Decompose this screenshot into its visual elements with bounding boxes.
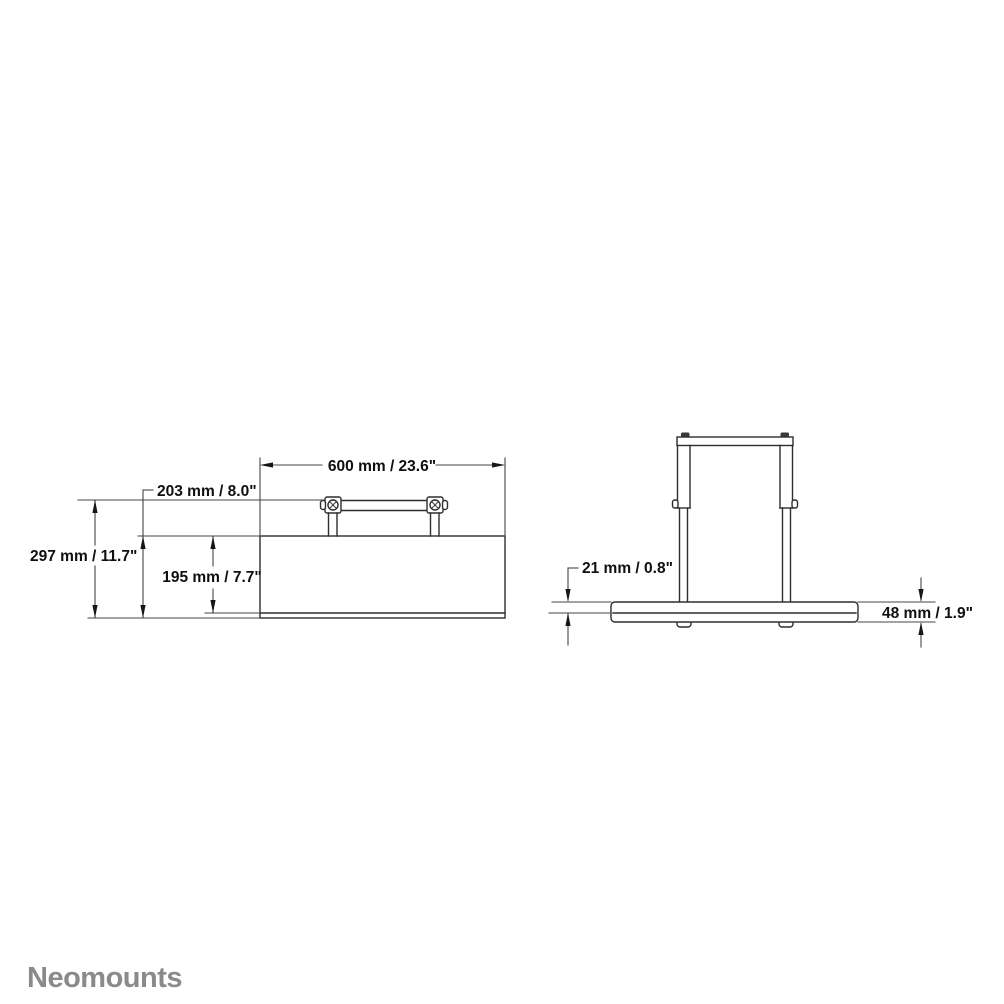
side-shelf-plate [611, 602, 858, 627]
arrow-down-icon [92, 605, 97, 618]
plate-body [611, 602, 858, 622]
front-mounting-bracket [321, 497, 448, 536]
arrow-up-icon [92, 500, 97, 513]
screw-block-left-nub [321, 501, 326, 510]
dimension-total-thickness-48: 48 mm / 1.9" [882, 578, 973, 647]
arrow-up-icon [918, 622, 923, 635]
dimension-body-height-195: 195 mm / 7.7" [162, 536, 262, 613]
arrow-down-icon [918, 589, 923, 602]
dimension-label-outer-height: 203 mm / 8.0" [157, 483, 257, 500]
arrow-left-icon [260, 462, 273, 467]
front-shelf-body [260, 536, 505, 618]
arrow-up-icon [565, 613, 570, 626]
arrow-up-icon [140, 536, 145, 549]
technical-drawing-page: 600 mm / 23.6" 297 mm / 11.7" 203 mm / 8… [0, 0, 1004, 1004]
dimension-label-width: 600 mm / 23.6" [328, 458, 436, 475]
dimension-outer-height-203: 203 mm / 8.0" [140, 483, 256, 618]
arrow-down-icon [140, 605, 145, 618]
clamp-left [673, 500, 679, 508]
front-view: 600 mm / 23.6" 297 mm / 11.7" 203 mm / 8… [30, 458, 505, 618]
dimension-label-top-thickness: 21 mm / 0.8" [582, 560, 673, 577]
arrow-down-icon [565, 589, 570, 602]
bracket-top-bar [677, 437, 793, 446]
arrow-up-icon [210, 536, 215, 549]
arrow-down-icon [210, 600, 215, 613]
dimension-label-total-thickness: 48 mm / 1.9" [882, 605, 973, 622]
dimension-total-height-297: 297 mm / 11.7" [30, 500, 137, 618]
dimension-label-total-height: 297 mm / 11.7" [30, 548, 137, 565]
side-view: 21 mm / 0.8" 48 mm / 1.9" [549, 433, 973, 648]
neomounts-logo: Neomounts [27, 962, 182, 994]
dimension-drawing: 600 mm / 23.6" 297 mm / 11.7" 203 mm / 8… [0, 0, 1004, 1004]
side-bracket [673, 433, 798, 603]
arrow-right-icon [492, 462, 505, 467]
screw-block-right-nub [443, 501, 448, 510]
shelf-box [260, 536, 505, 618]
dimension-label-body-height: 195 mm / 7.7" [162, 569, 262, 586]
dimension-width-600: 600 mm / 23.6" [260, 458, 505, 475]
clamp-right [792, 500, 798, 508]
